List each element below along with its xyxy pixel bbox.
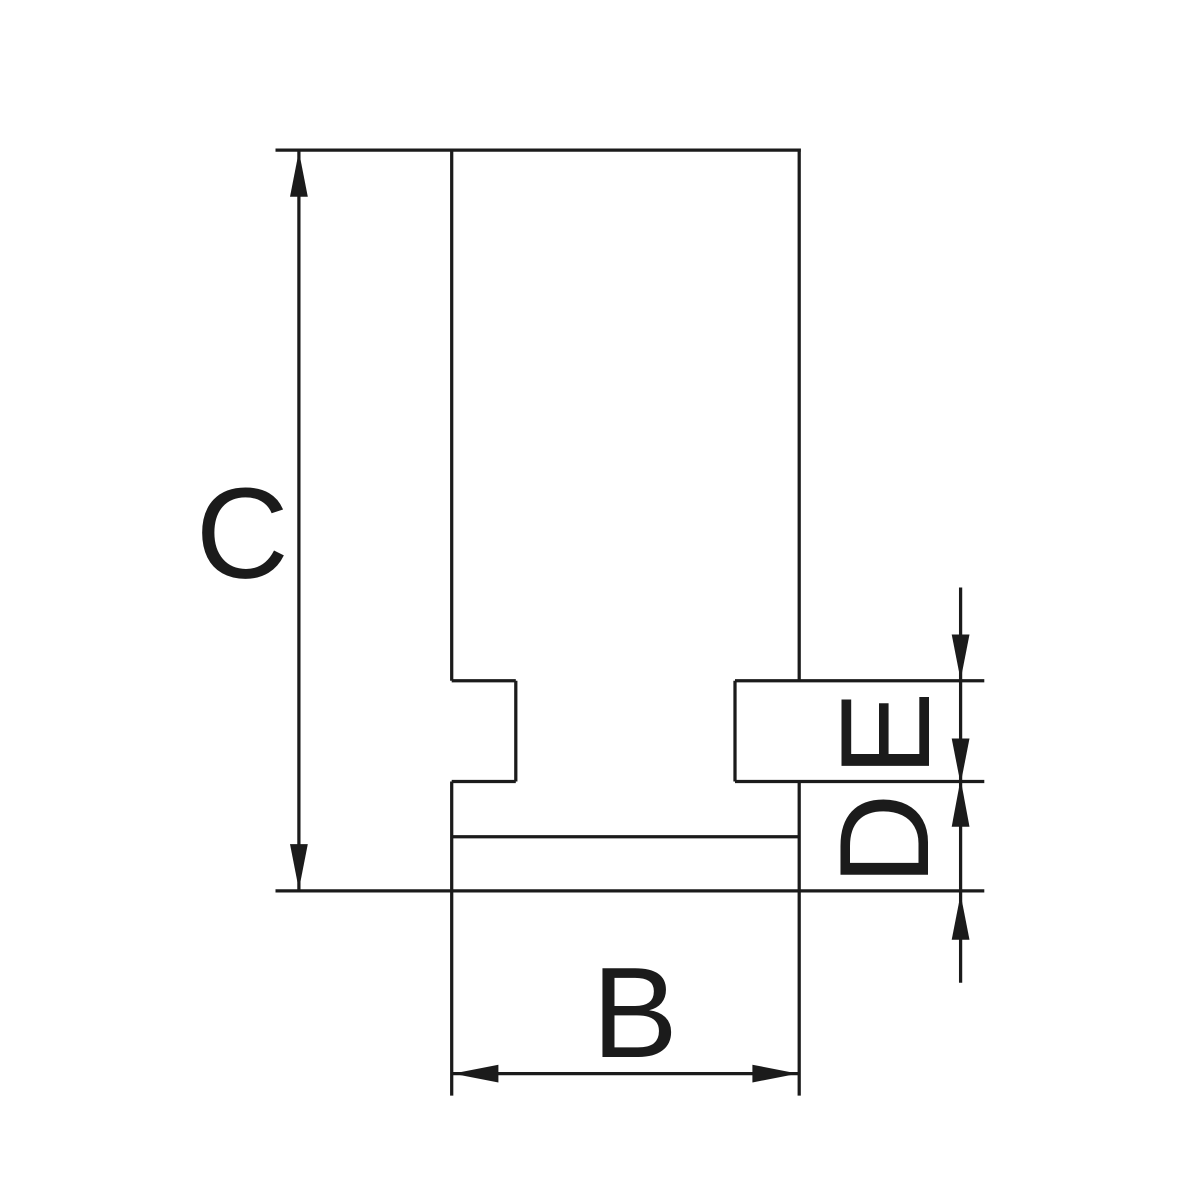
svg-text:E: E [814,692,956,777]
svg-text:D: D [813,793,955,885]
svg-text:C: C [196,462,289,606]
svg-text:B: B [592,941,678,1085]
